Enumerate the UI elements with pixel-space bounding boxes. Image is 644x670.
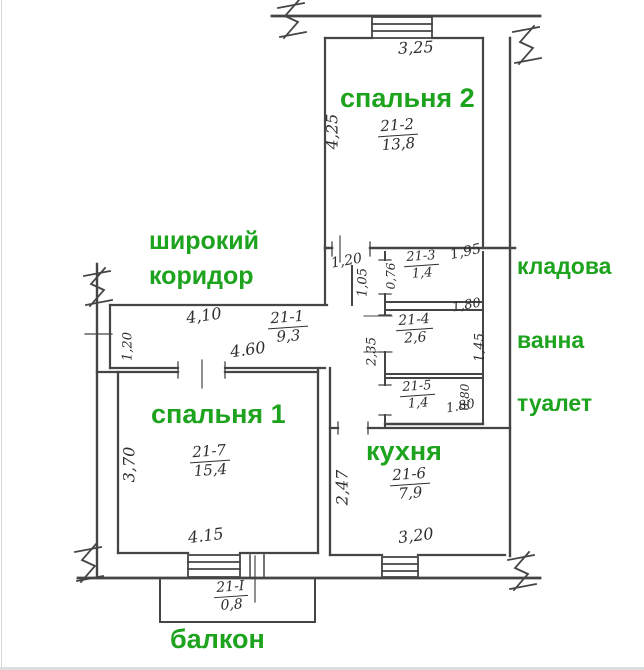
dim-lobby-width: 0,76 [384,253,398,299]
room-code-area-bedroom1: 21-7 15,4 [189,443,231,480]
dim-bath-depth: 1,45 [473,325,488,371]
dim-kitchen-depth: 2,47 [333,465,352,511]
room-label-bedroom2: спальня 2 [340,83,475,114]
wall-break-icon [278,0,306,38]
room-label-bath: ванна [517,327,584,354]
wall-break-icon [508,552,536,590]
floorplan-page: спальня 2 широкий коридор кладова ванна … [0,0,644,670]
room-code-area-kitchen: 21-6 7,9 [389,466,431,503]
room-label-toilet: туалет [517,390,592,417]
room-label-bedroom1: спальня 1 [151,399,286,430]
room-area: 1,4 [400,394,436,411]
window-icon [372,17,432,38]
scan-edge [1,0,2,670]
room-code-area-pantry: 21-3 1,4 [403,249,440,282]
room-area: 0,8 [214,595,249,613]
room-code-area-balcony: 21-I 0,8 [213,579,249,614]
room-code-area-corridor: 21-1 9,3 [267,309,309,346]
room-area: 7,9 [390,483,431,502]
room-code-area-toilet: 21-5 1,4 [399,379,436,412]
dim-bath-hall: 2,35 [365,329,380,375]
room-label-corridor-line1: широкий [149,227,259,256]
wall-break-icon [75,544,103,582]
wall-break-icon [513,26,541,64]
dim-corridor-entry: 1,20 [121,324,136,370]
dim-bedroom2-depth: 4,25 [323,109,342,155]
room-label-corridor-line2: коридор [149,262,254,291]
room-label-kitchen: кухня [366,436,442,467]
room-label-balcony: балкон [170,624,265,655]
room-code-area-bedroom2: 21-2 13,8 [377,117,419,154]
room-area: 9,3 [268,326,309,345]
room-code-area-bath: 21-4 2,6 [395,312,435,347]
room-area: 15,4 [190,460,231,479]
window-icon [382,557,418,577]
window-icon [188,555,240,577]
room-area: 1,4 [404,264,440,281]
dim-lobby-depth: 1,05 [356,260,371,306]
door-jambs [338,422,368,434]
room-label-pantry: кладова [517,253,611,280]
room-area: 13,8 [378,134,419,153]
dim-bedroom1-depth: 3,70 [120,442,139,488]
dim-bedroom2-width: 3,25 [398,37,435,58]
room-area: 2,6 [396,328,434,346]
dim-toilet-depth: 0,80 [458,374,472,420]
